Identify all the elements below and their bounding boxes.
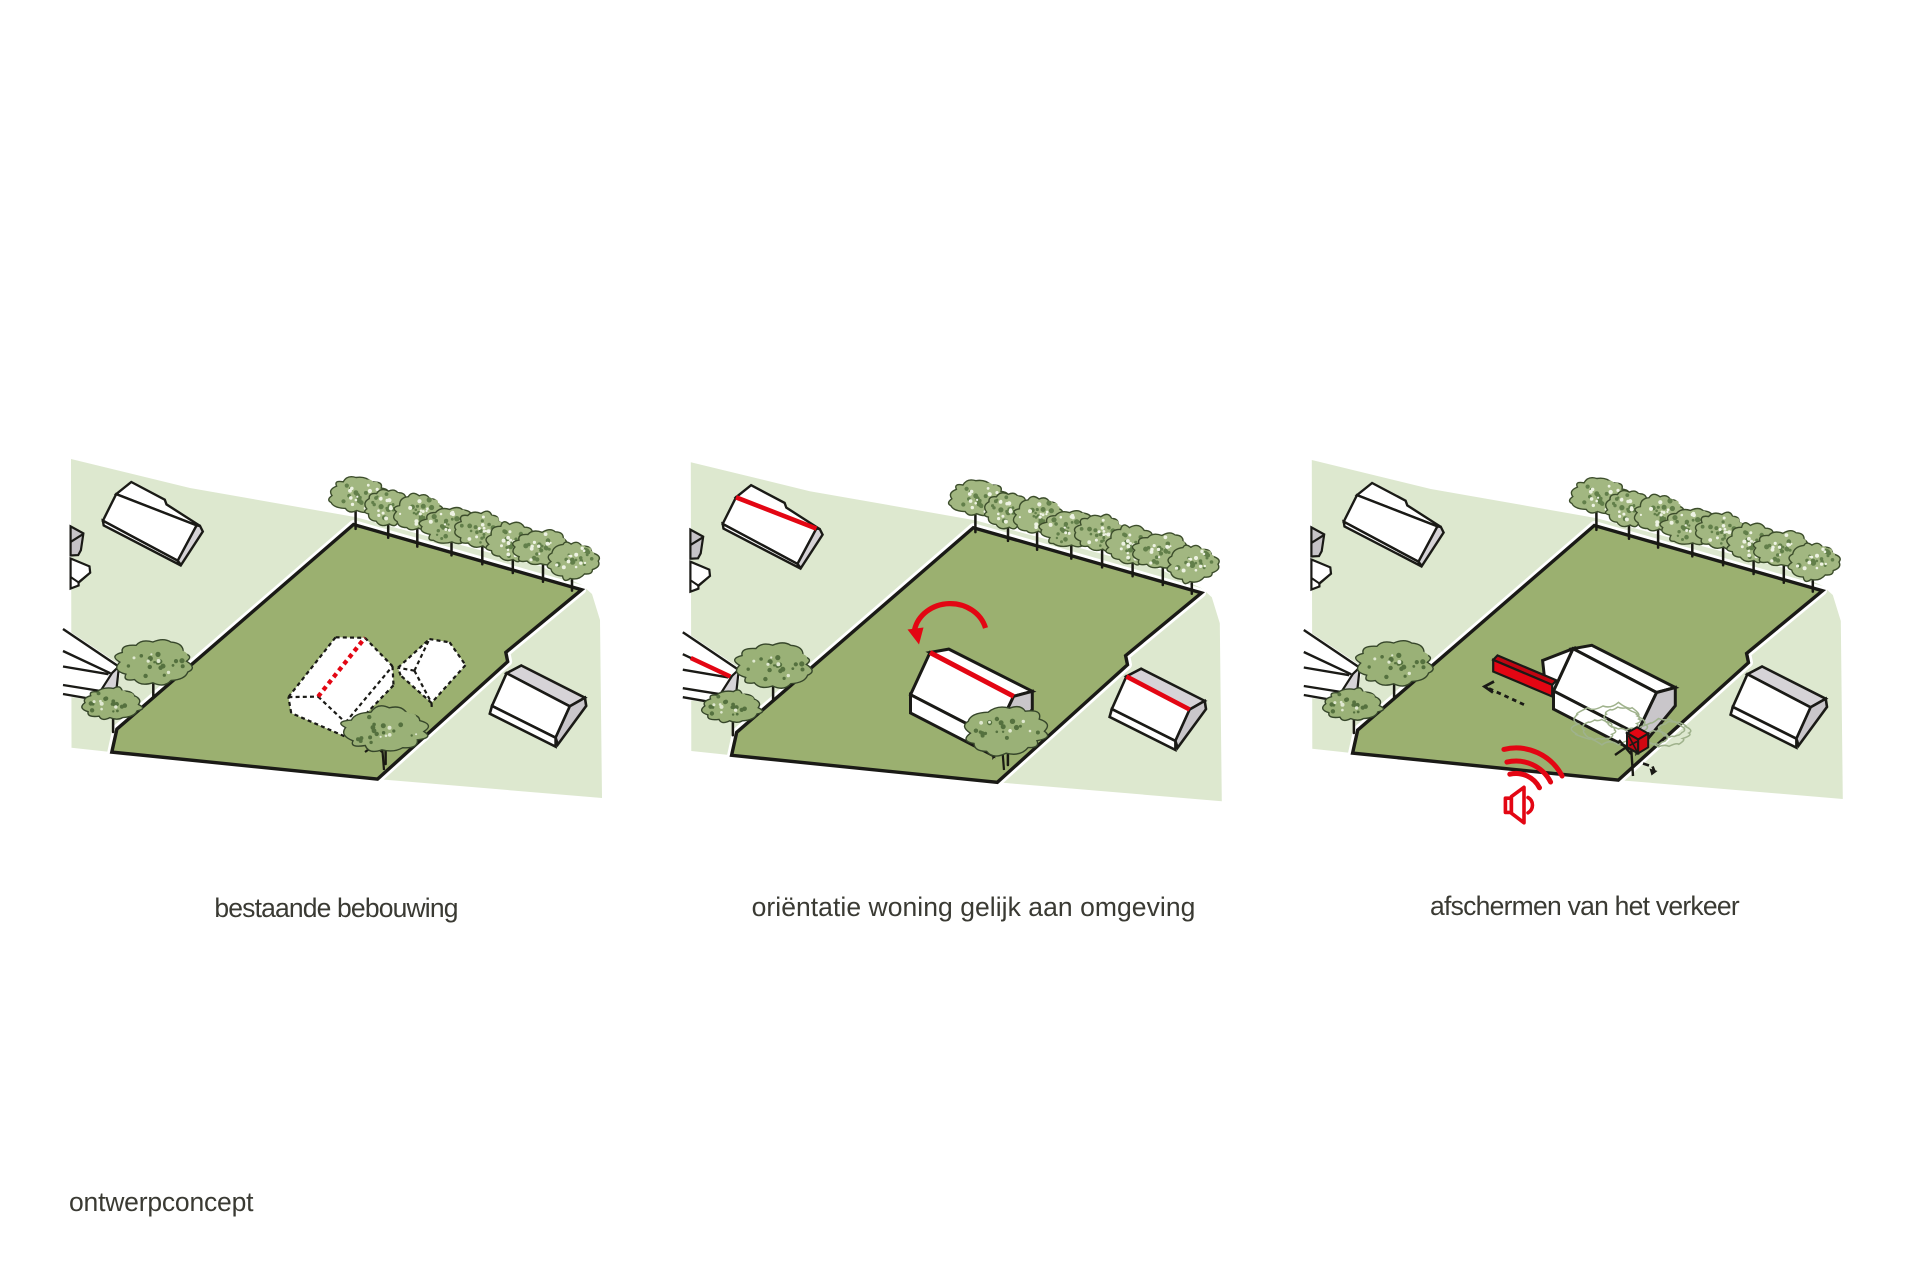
svg-text:bestaande bebouwing: bestaande bebouwing — [214, 893, 457, 923]
svg-text:ontwerpconcept: ontwerpconcept — [69, 1187, 254, 1217]
svg-text:oriëntatie woning gelijk aan o: oriëntatie woning gelijk aan omgeving — [752, 892, 1196, 922]
svg-text:afschermen van het verkeer: afschermen van het verkeer — [1430, 891, 1740, 921]
